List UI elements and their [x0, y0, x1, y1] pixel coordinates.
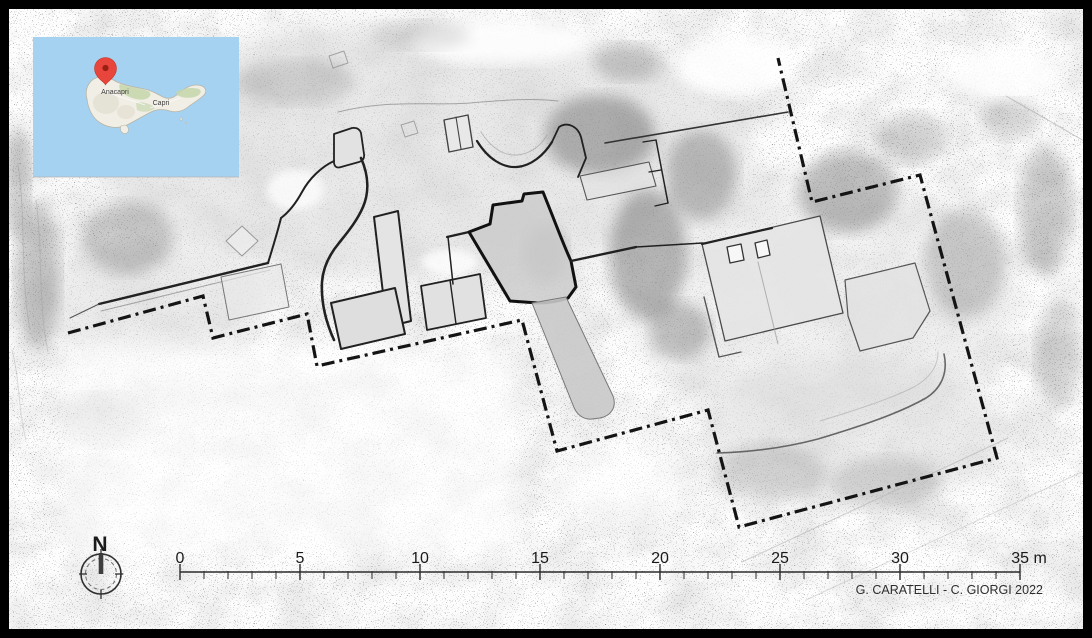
scale-label: 35 m — [1011, 550, 1047, 567]
inset-islet-1 — [180, 118, 182, 120]
inset-label-anacapri: Anacapri — [101, 89, 129, 96]
east-room-niche-1 — [727, 244, 744, 263]
scale-label: 10 — [411, 550, 429, 567]
north-needle — [99, 553, 104, 574]
inset-map: Anacapri Capri — [33, 37, 239, 177]
site-plan-svg: Anacapri Capri N 05101520253035 m — [0, 0, 1092, 638]
scale-label: 20 — [651, 550, 669, 567]
inset-label-capri: Capri — [153, 100, 170, 107]
east-room-niche-2 — [755, 240, 770, 258]
credits: G. CARATELLI - C. GIORGI 2022 — [856, 583, 1043, 597]
north-label: N — [92, 533, 107, 556]
scale-label: 0 — [176, 550, 185, 567]
figure-root: Anacapri Capri N 05101520253035 m — [0, 0, 1092, 638]
scale-label: 5 — [296, 550, 305, 567]
exedra1-head — [334, 128, 364, 168]
scale-label: 30 — [891, 550, 909, 567]
inset-islet-2 — [185, 122, 187, 124]
inset-island-tail — [120, 125, 128, 134]
scale-label: 25 — [771, 550, 789, 567]
inset-hill-shade-2 — [117, 105, 135, 119]
scale-label: 15 — [531, 550, 549, 567]
